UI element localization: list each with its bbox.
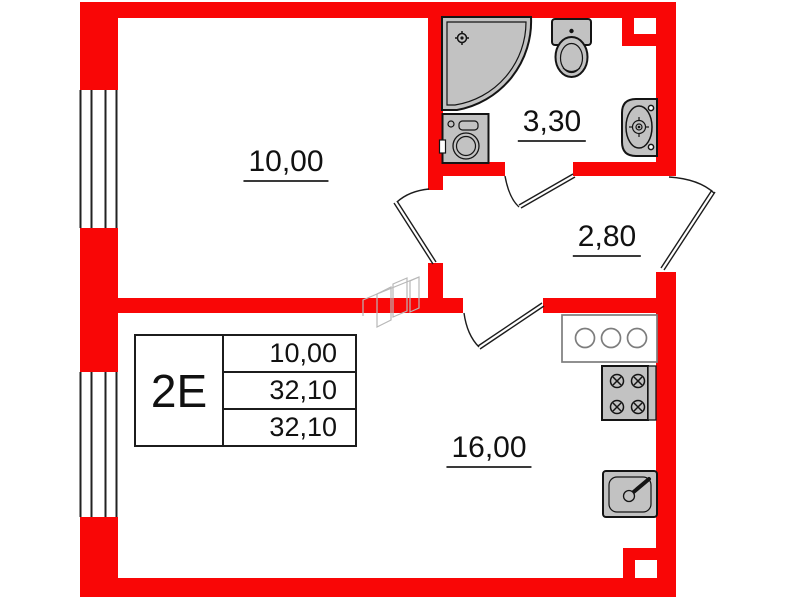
window-icon — [81, 90, 117, 228]
unit-area-row: 32,10 — [224, 408, 355, 445]
unit-info-table: 2E 10,00 32,10 32,10 — [134, 334, 357, 447]
kitchen-door-swing-icon — [464, 303, 544, 349]
bathroom-area-label: 3,30 — [518, 107, 586, 142]
vent-shaft-bottom-icon — [623, 548, 657, 578]
toilet-icon — [552, 19, 591, 77]
vent-shaft-top-icon — [622, 18, 656, 46]
kitchen-sink-icon — [603, 471, 657, 517]
unit-area-row: 10,00 — [224, 336, 355, 371]
kitchen-living-area-label: 16,00 — [446, 433, 531, 468]
floor-plan-drawing — [0, 0, 800, 600]
room-door-swing-icon — [394, 189, 436, 264]
living-room-area-label: 10,00 — [243, 147, 328, 182]
corner-shower-icon — [442, 17, 531, 110]
hallway-area-label: 2,80 — [573, 222, 641, 257]
window-icon — [81, 372, 117, 517]
unit-area-row: 32,10 — [224, 371, 355, 408]
floor-plan: 10,00 3,30 2,80 16,00 2E 10,00 32,10 32,… — [0, 0, 800, 600]
entrance-door-swing-icon — [661, 177, 715, 270]
bathroom-door-swing-icon — [505, 174, 575, 208]
gas-stove-icon — [602, 366, 656, 420]
unit-areas: 10,00 32,10 32,10 — [224, 336, 355, 445]
wall-basin-icon — [622, 99, 657, 156]
unit-number: 2E — [136, 336, 224, 445]
kitchen-counter-icon — [562, 315, 657, 362]
walls — [80, 2, 676, 597]
washing-machine-icon — [440, 114, 489, 163]
